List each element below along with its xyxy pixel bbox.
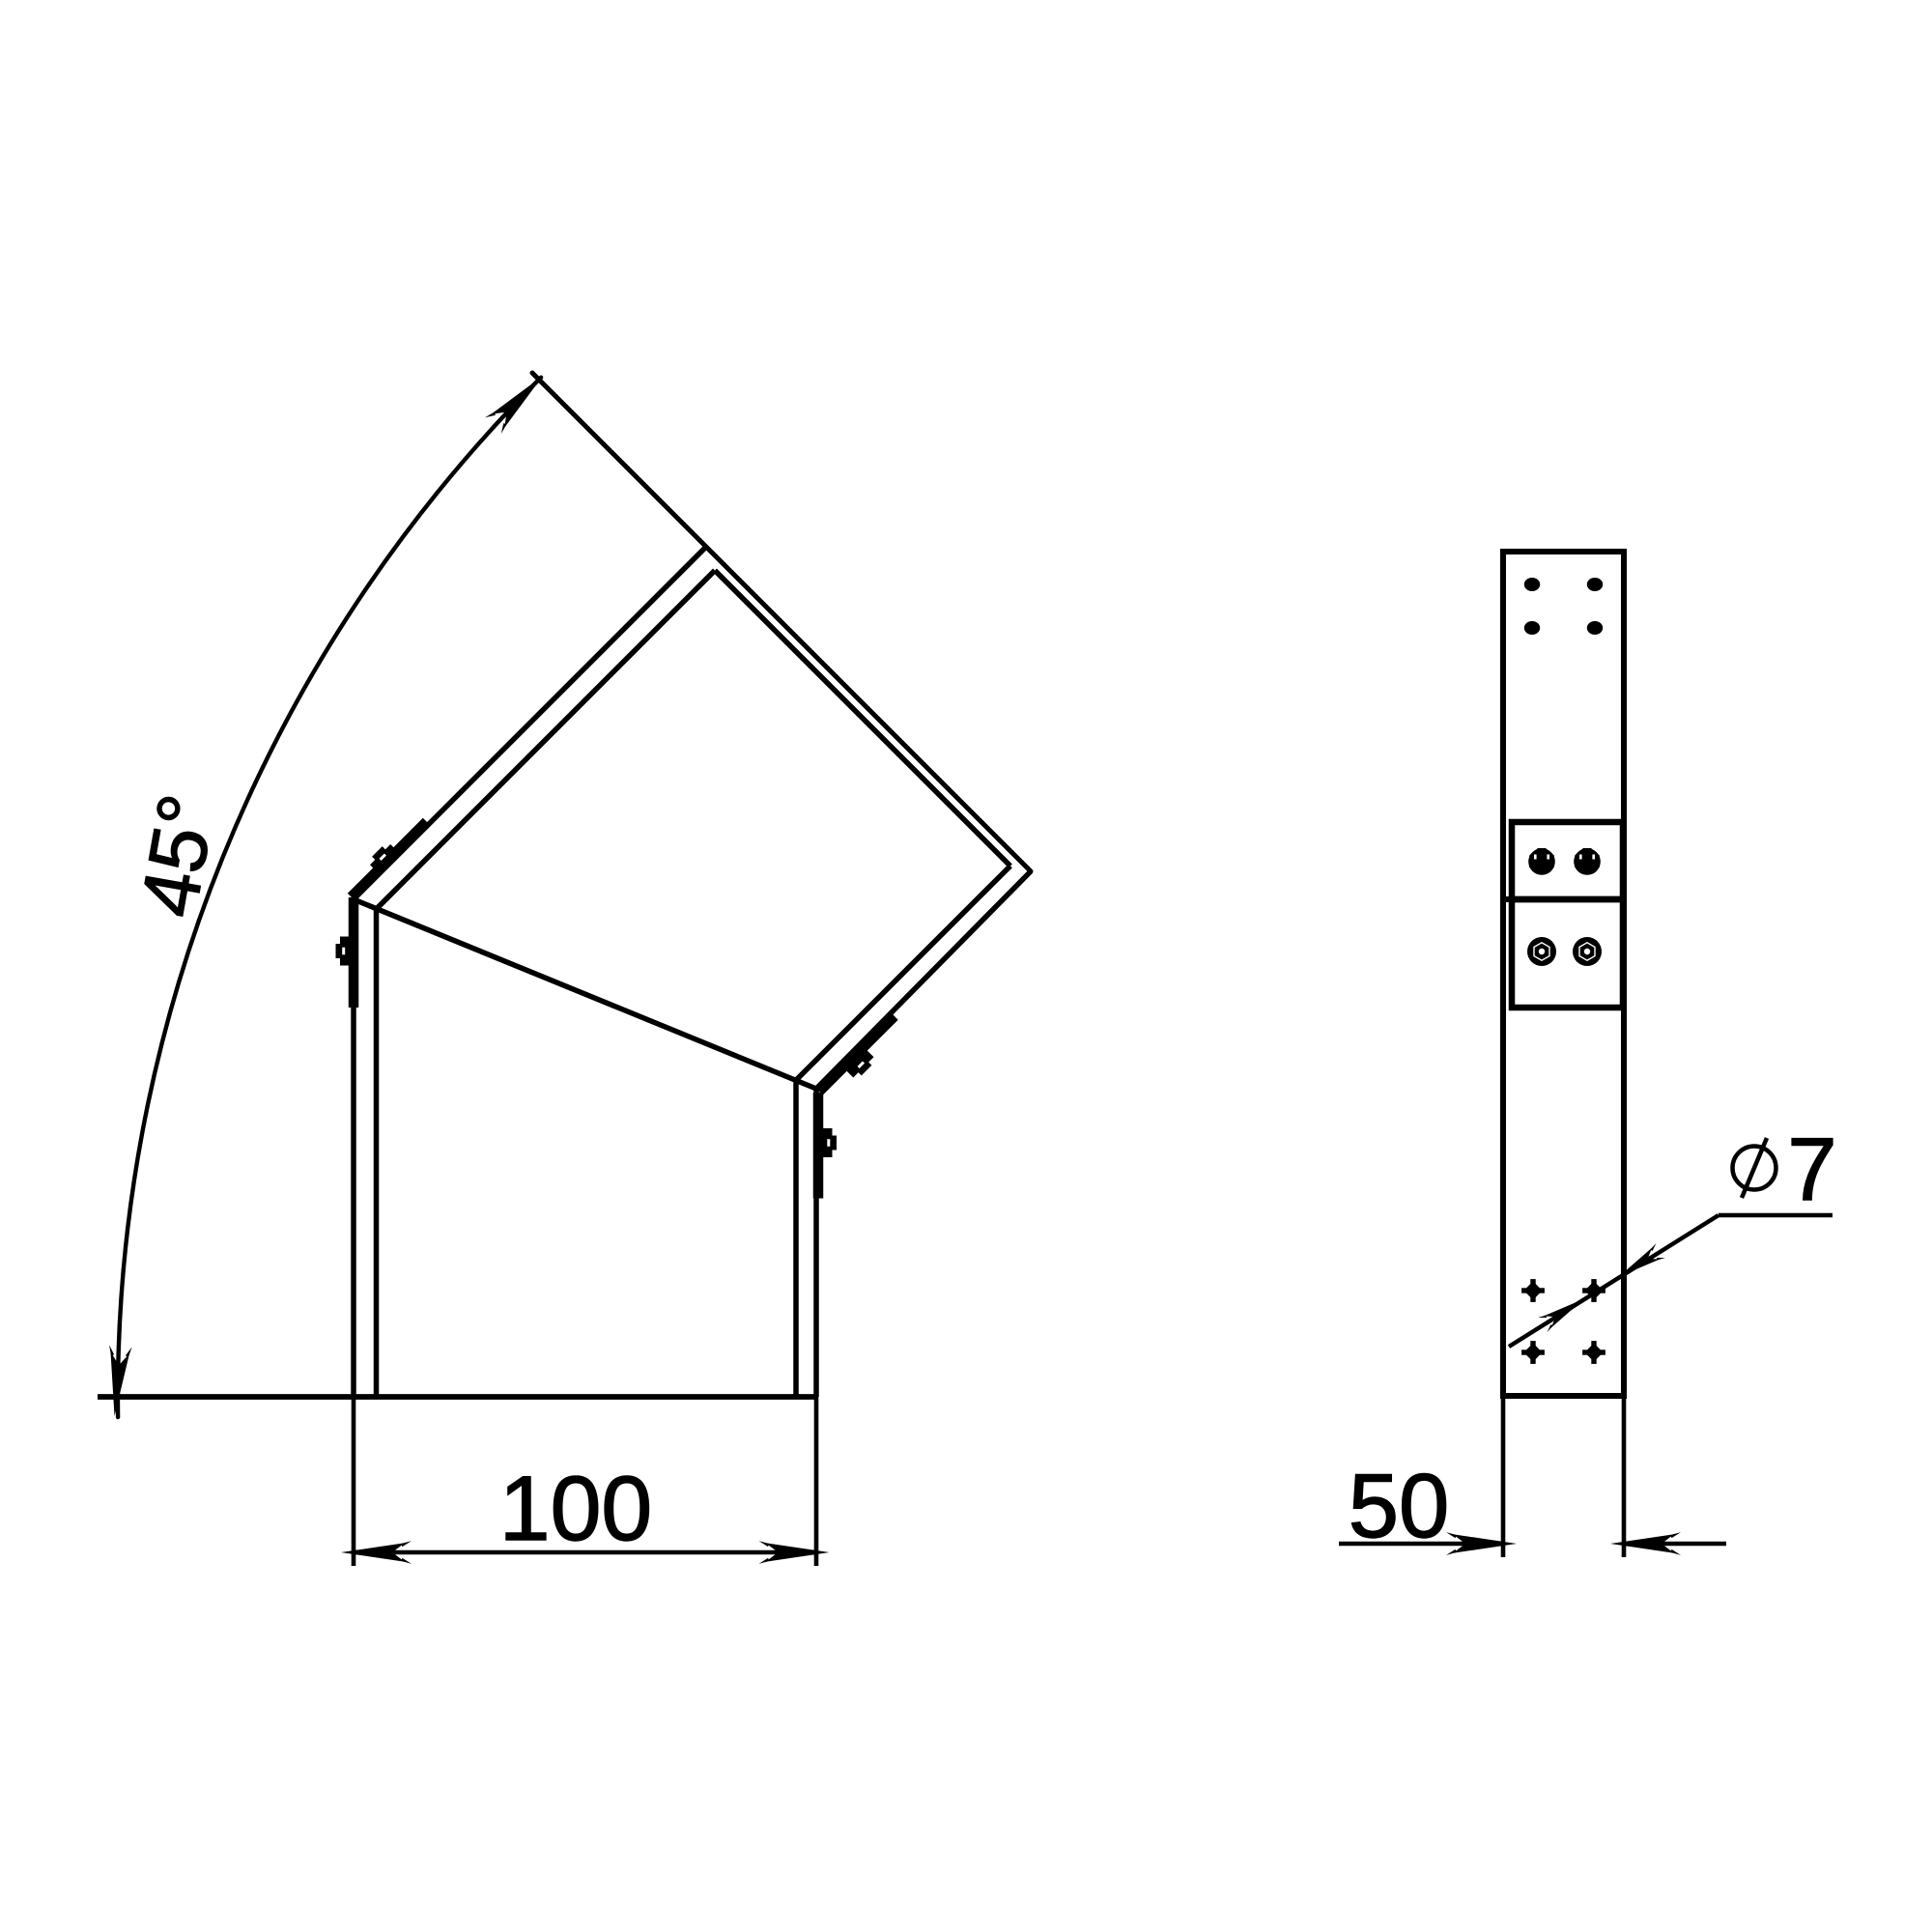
svg-text:7: 7 (1787, 1121, 1836, 1219)
svg-text:50: 50 (1349, 1455, 1450, 1556)
svg-text:100: 100 (499, 1458, 653, 1560)
